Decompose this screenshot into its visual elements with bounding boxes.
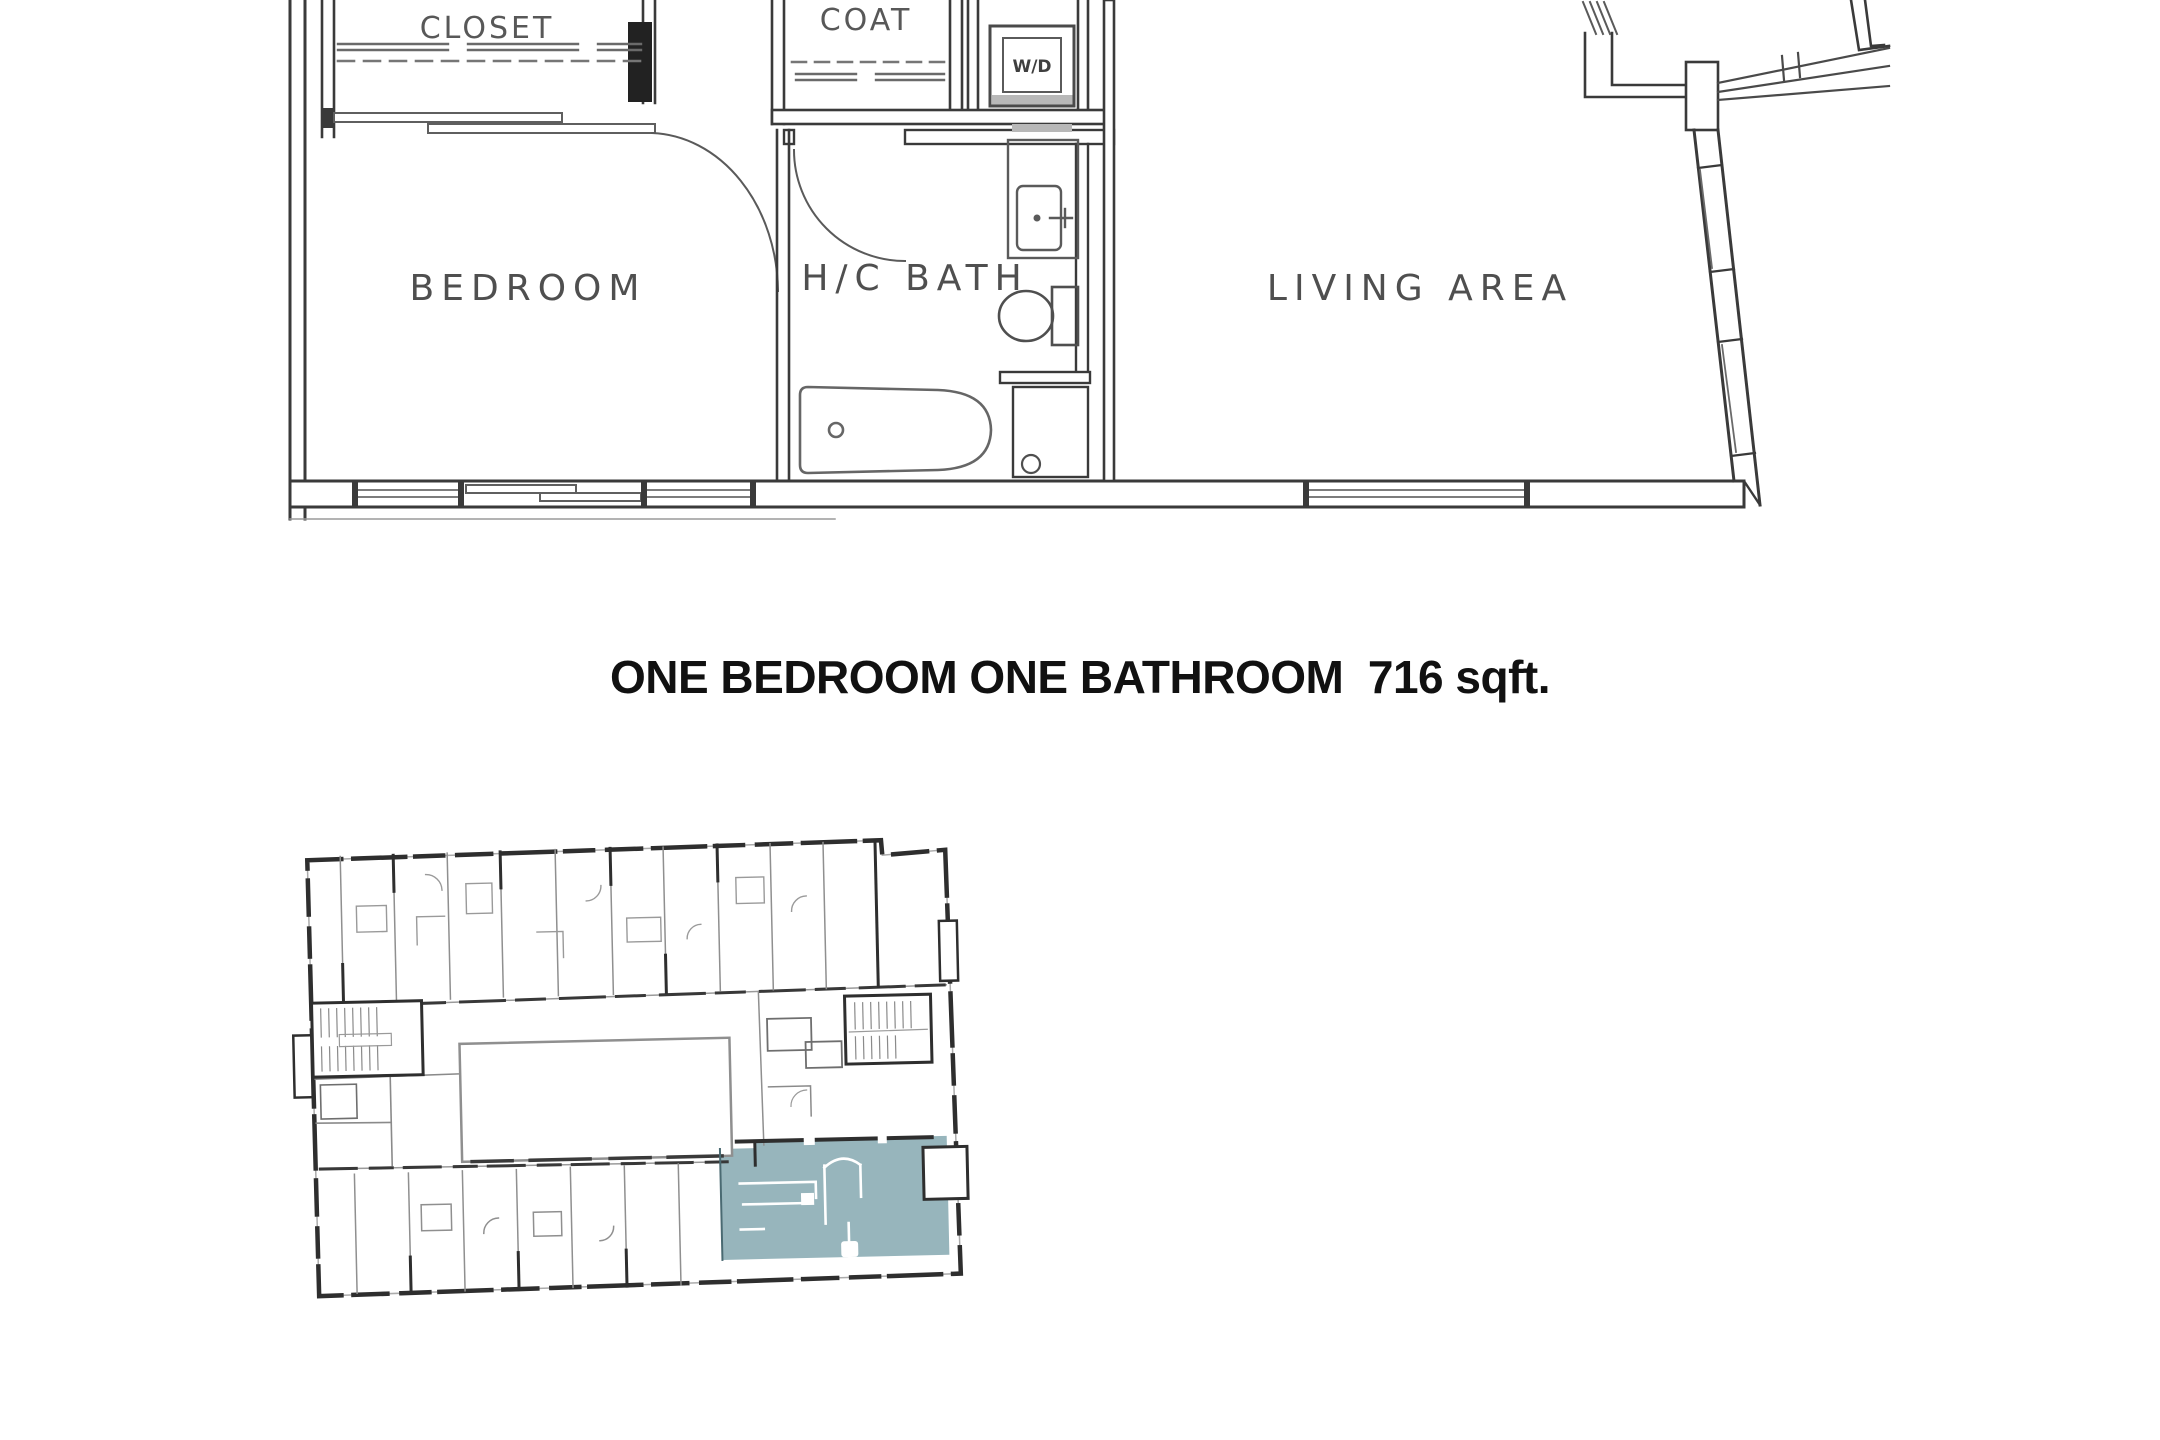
closet-label: CLOSET	[420, 11, 555, 46]
entry-door-arc	[652, 133, 778, 291]
closet-bypass-doors	[322, 108, 655, 133]
window	[1700, 170, 1736, 452]
washer-dryer-label: W/D	[1012, 57, 1051, 77]
floor-plan-drawing: CLOSET COAT W/D	[0, 0, 2160, 1440]
shower-closet	[1000, 372, 1090, 477]
hall-bottom-wall	[772, 110, 1106, 124]
plan-title: ONE BEDROOM ONE BATHROOM 716 sqft.	[0, 650, 2160, 704]
bottom-wall	[290, 481, 1744, 519]
bedroom-closet: CLOSET	[322, 0, 655, 137]
sink-icon	[1008, 140, 1078, 258]
living-divider-wall	[1104, 0, 1114, 481]
coat-closet: COAT	[772, 0, 962, 124]
balcony-railing	[1718, 48, 1889, 100]
unit-divider-jambs	[340, 840, 878, 1001]
stair-core-left	[312, 1001, 424, 1077]
floor-plan-sheet: CLOSET COAT W/D	[0, 0, 2160, 1440]
bathroom: H/C BATH	[777, 124, 1114, 481]
unit-floor-plan: CLOSET COAT W/D	[290, 0, 1889, 519]
toilet-icon-small	[841, 1241, 858, 1257]
stair-core-right	[767, 994, 934, 1117]
right-slanted-wall	[1694, 130, 1760, 505]
balcony	[1583, 0, 1889, 130]
wd-ledge	[992, 95, 1074, 106]
unit-interior-walls	[356, 866, 808, 962]
coat-shelf-lines	[796, 74, 944, 80]
right-balcony-bump	[939, 921, 958, 981]
bedroom-label: BEDROOM	[410, 268, 647, 309]
unit-balcony	[923, 1146, 968, 1199]
mid-left-rooms	[315, 1074, 460, 1167]
wall-break-hatch	[1583, 2, 1617, 34]
coat-label: COAT	[820, 3, 913, 38]
bathtub-icon	[800, 387, 991, 473]
vanity-sill	[1012, 124, 1072, 132]
left-balcony-bump	[293, 1035, 312, 1097]
building-key-plan	[289, 838, 970, 1296]
living-area-label: LIVING AREA	[1267, 268, 1573, 309]
bath-door-arc	[794, 150, 905, 261]
bath-label: H/C BATH	[801, 258, 1028, 299]
courtyard	[459, 1038, 732, 1162]
left-wall	[290, 0, 305, 519]
